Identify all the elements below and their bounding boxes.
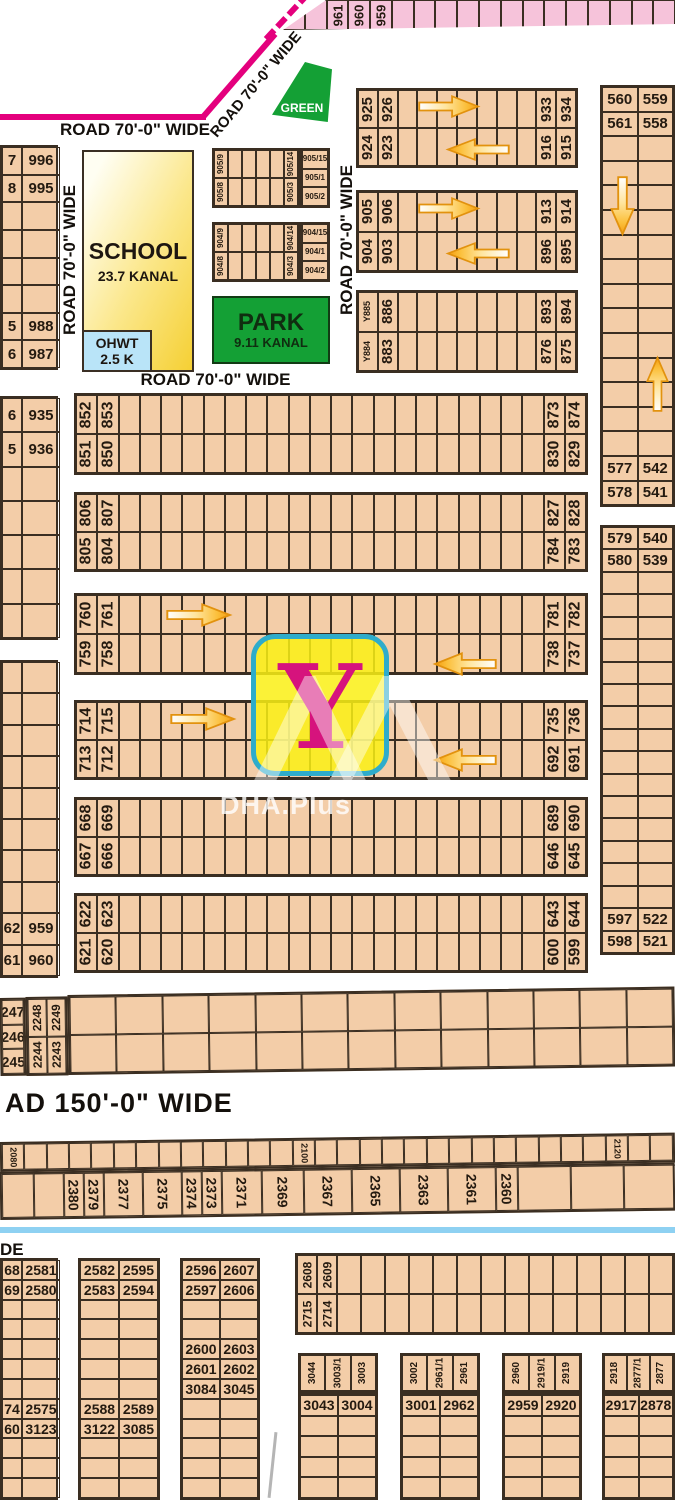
plot-cell	[449, 1137, 472, 1163]
park-area: 9.11 KANAL	[234, 335, 308, 350]
plot-cell	[161, 494, 182, 532]
plot-cell: 737	[565, 634, 586, 673]
block-2918-body: 29172878	[602, 1393, 675, 1500]
plot-cell	[374, 494, 395, 532]
school-area: 23.7 KANAL	[98, 268, 178, 284]
row-805: 806807827828805804784783	[74, 492, 588, 572]
plot-number: 783	[567, 538, 583, 565]
plot-cell	[398, 232, 418, 272]
plot-cell	[604, 1436, 639, 1457]
plot-cell: 851	[76, 434, 97, 473]
plot-cell	[315, 1139, 338, 1165]
plot-number: 2369	[276, 1176, 290, 1207]
plot-cell: 960	[22, 945, 60, 976]
plot-cell: 738	[544, 634, 565, 673]
plot-cell	[220, 1478, 258, 1498]
plot-number: 2920	[545, 1398, 576, 1412]
plot-cell	[300, 1477, 338, 1498]
plot-cell: 646	[544, 837, 565, 875]
ohwt-title: OHWT	[96, 335, 139, 351]
plot-number: 961	[331, 4, 344, 26]
plot-cell	[119, 702, 140, 740]
plot-cell	[561, 1136, 584, 1162]
plot-cell	[331, 434, 352, 473]
plot-cell	[119, 1438, 158, 1458]
plot-cell: 68	[2, 1260, 22, 1280]
plot-number: 578	[607, 485, 632, 500]
plot-number: 761	[100, 601, 116, 628]
plot-cell	[604, 1457, 639, 1478]
plot-cell: 904/3	[284, 252, 298, 280]
plot-cell: 905/3	[284, 178, 298, 206]
plot-cell	[480, 837, 501, 875]
plot-cell	[457, 1255, 481, 1294]
plot-cell	[220, 1458, 258, 1478]
plot-cell	[602, 284, 638, 309]
plot-number: 2360	[500, 1173, 514, 1204]
plot-cell	[80, 1438, 119, 1458]
strip-2360s: 2380237923772375237423732371236923672365…	[0, 1163, 675, 1220]
plot-number: 828	[567, 500, 583, 527]
plot-cell	[140, 799, 161, 837]
plot-cell: 2361	[448, 1167, 497, 1212]
plot-number: 2609	[321, 1261, 333, 1288]
plot-cell	[404, 1138, 427, 1164]
plot-cell	[2, 1300, 22, 1320]
plot-number: 643	[546, 901, 562, 928]
plot-cell	[441, 991, 488, 1030]
plot-cell	[566, 0, 588, 30]
plot-cell: 559	[638, 87, 674, 112]
plot-cell	[638, 774, 674, 796]
plot-number: 2365	[369, 1175, 383, 1206]
plot-cell	[22, 501, 60, 535]
plot-cell	[119, 1339, 158, 1359]
plot-cell	[638, 751, 674, 773]
plot-number: 644	[567, 901, 583, 928]
plot-cell: 934	[556, 90, 576, 128]
plot-cell: 896	[536, 232, 556, 272]
plot-cell	[22, 467, 60, 501]
plot-number: 2595	[123, 1263, 154, 1277]
plot-cell: 903	[378, 232, 398, 272]
plot-cell: 905	[358, 192, 378, 232]
plot-cell	[310, 434, 331, 473]
plot-cell	[161, 933, 182, 971]
plot-cell	[2, 467, 22, 501]
plot-cell	[374, 837, 395, 875]
plot-cell	[459, 395, 480, 434]
plot-number: 74	[4, 1402, 20, 1416]
plot-cell	[481, 1255, 505, 1294]
plot-cell	[501, 702, 522, 740]
plot-cell	[2, 693, 22, 724]
plot-cell	[542, 1457, 580, 1478]
plot-cell	[602, 774, 638, 796]
plot-cell	[270, 1140, 293, 1166]
plot-cell: 2588	[80, 1399, 119, 1419]
plot-cell	[302, 1031, 349, 1070]
plot-number: 904/9	[217, 228, 225, 248]
plot-cell: 521	[638, 931, 674, 953]
plot-cell	[182, 532, 203, 570]
plot-cell	[22, 1339, 60, 1359]
plot-number: 2582	[84, 1263, 115, 1277]
plot-cell	[518, 1166, 572, 1211]
plot-cell	[487, 990, 534, 1029]
plot-cell: 926	[378, 90, 398, 128]
plot-cell: 3004	[338, 1395, 376, 1416]
plot-cell: 623	[97, 895, 118, 933]
plot-cell	[140, 595, 161, 634]
plot-cell	[80, 1339, 119, 1359]
plot-cell	[209, 1032, 256, 1071]
plot-cell	[602, 841, 638, 863]
plot-cell	[352, 395, 373, 434]
plot-cell	[480, 799, 501, 837]
plot-cell: 759	[76, 634, 97, 673]
plot-cell	[523, 0, 545, 30]
plot-number: 246	[2, 1030, 24, 1044]
plot-cell	[2, 756, 22, 787]
plot-cell	[228, 252, 242, 280]
plot-cell	[542, 1477, 580, 1498]
plot-number: 2878	[640, 1398, 671, 1412]
plot-cell	[459, 799, 480, 837]
plot-cell	[22, 1458, 60, 1478]
plot-cell	[140, 494, 161, 532]
plot-number: 2243	[51, 1041, 63, 1068]
plot-number: 894	[559, 299, 574, 324]
plot-cell	[639, 1477, 674, 1498]
plot-cell	[22, 788, 60, 819]
plot-cell: 667	[76, 837, 97, 875]
plot-number: 2363	[417, 1174, 431, 1205]
plot-cell: 7	[2, 147, 22, 175]
plot-cell: 828	[565, 494, 586, 532]
plot-number: 914	[559, 199, 574, 224]
plot-cell	[22, 569, 60, 603]
plot-cell: 2608	[297, 1255, 317, 1294]
plot-cell	[256, 224, 270, 252]
plot-cell	[246, 595, 267, 634]
plot-cell	[352, 494, 373, 532]
plot-cell: 3045	[220, 1379, 258, 1399]
plot-number: 904/1	[305, 248, 325, 256]
plot-cell	[480, 702, 501, 740]
plot-number: 2580	[25, 1283, 56, 1297]
plot-cell: 936	[22, 432, 60, 466]
plot-cell	[494, 1137, 517, 1163]
plot-cell: 577	[602, 456, 638, 481]
plot-cell	[267, 532, 288, 570]
plot-cell	[209, 994, 256, 1033]
row-851: 852853873874851850830829	[74, 393, 588, 475]
plot-cell: 2583	[80, 1280, 119, 1300]
plot-cell	[140, 740, 161, 778]
plot-number: 905	[360, 199, 375, 224]
plot-number: 935	[28, 408, 53, 423]
plot-number: 2100	[299, 1143, 308, 1163]
plot-number: 883	[380, 339, 395, 364]
plot-cell	[331, 895, 352, 933]
plot-cell	[270, 178, 284, 206]
cluster-904-grid: 904/9904/14904/8904/3	[212, 222, 300, 282]
plot-cell	[638, 572, 674, 594]
plot-number: 3084	[185, 1382, 216, 1396]
plot-number: 579	[607, 531, 632, 546]
plot-cell	[267, 434, 288, 473]
plot-cell	[352, 837, 373, 875]
plot-cell: 904/1	[302, 243, 328, 262]
plot-number: 830	[546, 440, 562, 467]
plot-cell	[638, 594, 674, 616]
divider-line	[268, 1432, 278, 1498]
plot-cell	[225, 395, 246, 434]
plot-cell: 806	[76, 494, 97, 532]
plot-cell: 2962	[440, 1395, 478, 1416]
plot-cell	[417, 232, 437, 272]
plot-cell	[182, 1300, 220, 1320]
plot-cell	[392, 0, 414, 30]
plot-cell	[394, 992, 441, 1031]
plot-cell	[2, 1339, 22, 1359]
plot-cell	[522, 895, 543, 933]
plot-cell	[459, 494, 480, 532]
plot-cell	[602, 358, 638, 383]
plot-cell	[225, 933, 246, 971]
plot-number: 807	[100, 500, 116, 527]
plot-cell	[638, 259, 674, 284]
plot-number: 539	[643, 553, 668, 568]
left-block-2: 69355936	[0, 396, 58, 640]
plot-cell: 916	[536, 128, 556, 166]
plot-number: 960	[28, 953, 53, 968]
plot-cell: 873	[544, 395, 565, 434]
plot-number: 904	[360, 239, 375, 264]
plot-number: 3123	[25, 1422, 56, 1436]
plot-cell	[588, 0, 610, 30]
plot-cell	[220, 1399, 258, 1419]
block-2960-head: 29602919/12919	[502, 1353, 582, 1393]
plot-cell	[161, 434, 182, 473]
plot-number: 2917	[606, 1398, 637, 1412]
plot-cell: 560	[602, 87, 638, 112]
plot-cell: 804	[97, 532, 118, 570]
plot-number: 3003/1	[333, 1358, 343, 1389]
plot-cell	[437, 332, 457, 372]
plot-cell	[374, 895, 395, 933]
plot-number: 2962	[443, 1398, 474, 1412]
plot-number: 69	[4, 1283, 20, 1297]
plot-cell	[119, 1458, 158, 1478]
plot-cell: 2367	[304, 1169, 353, 1214]
plot-cell	[459, 702, 480, 740]
plot-number: 667	[79, 843, 95, 870]
plot-number: 668	[79, 805, 95, 832]
plot-cell	[433, 1294, 457, 1333]
plot-number: 2377	[116, 1179, 130, 1210]
plot-cell	[416, 395, 437, 434]
plot-cell	[457, 0, 479, 30]
plot-cell	[402, 1477, 440, 1498]
plot-cell	[2, 1359, 22, 1379]
plot-number: 599	[567, 939, 583, 966]
plot-cell	[638, 308, 674, 333]
plot-cell	[440, 1477, 478, 1498]
plot-cell	[2, 819, 22, 850]
plot-cell	[337, 1255, 361, 1294]
plot-number: 874	[567, 401, 583, 428]
plot-cell	[602, 594, 638, 616]
plot-cell	[204, 494, 225, 532]
plot-number: 851	[79, 440, 95, 467]
plot-cell	[433, 1255, 457, 1294]
plot-cell: 933	[536, 90, 556, 128]
plot-cell	[604, 1477, 639, 1498]
plot-cell	[289, 837, 310, 875]
plot-cell	[501, 434, 522, 473]
plot-cell: 935	[22, 398, 60, 432]
plot-cell	[289, 434, 310, 473]
plot-cell	[638, 706, 674, 728]
plot-cell	[627, 1027, 674, 1066]
plot-cell	[416, 494, 437, 532]
plot-cell	[140, 702, 161, 740]
plot-cell	[22, 1359, 60, 1379]
plot-cell: 6	[2, 398, 22, 432]
plot-cell	[517, 232, 537, 272]
plot-number: 2373	[205, 1177, 219, 1208]
plot-cell	[352, 532, 373, 570]
plot-number: 926	[380, 96, 395, 121]
plot-cell	[416, 837, 437, 875]
plot-cell	[638, 818, 674, 840]
plot-cell: 2365	[352, 1168, 401, 1213]
plot-cell	[553, 1294, 577, 1333]
plot-cell	[310, 837, 331, 875]
plot-number: 561	[607, 116, 632, 131]
plot-number: 2919/1	[537, 1358, 547, 1389]
plot-cell	[638, 136, 674, 161]
plot-cell	[638, 617, 674, 639]
plot-cell	[22, 604, 60, 638]
plot-number: 996	[28, 153, 53, 168]
plot-cell	[398, 332, 418, 372]
plot-cell	[22, 882, 60, 913]
park-block: PARK 9.11 KANAL	[212, 296, 330, 364]
plot-cell	[583, 1136, 606, 1162]
plot-cell: 3002	[402, 1355, 427, 1391]
plot-number: 2919	[562, 1362, 572, 1384]
plot-cell	[220, 1419, 258, 1439]
plot-cell	[225, 634, 246, 673]
plot-cell	[225, 532, 246, 570]
plot-number: 245	[2, 1054, 24, 1068]
road-label-mid-vertical: ROAD 70'-0" WIDE	[337, 129, 357, 351]
plot-cell	[270, 224, 284, 252]
plot-cell: 987	[22, 340, 60, 368]
plot-cell	[161, 740, 182, 778]
plot-cell: 784	[544, 532, 565, 570]
plot-cell	[119, 1478, 158, 1498]
plot-cell	[385, 1294, 409, 1333]
plot-cell	[638, 796, 674, 818]
cluster-905-side: 905/15905/1905/2	[300, 148, 330, 208]
plot-cell: 2249	[46, 998, 66, 1036]
plot-cell	[22, 693, 60, 724]
plot-cell	[161, 895, 182, 933]
plot-cell	[395, 595, 416, 634]
plot-cell	[338, 1416, 376, 1437]
plot-number: 2961/1	[435, 1358, 445, 1389]
plot-cell	[477, 292, 497, 332]
plot-cell	[2, 1319, 22, 1339]
plot-cell	[161, 799, 182, 837]
plot-number: 933	[539, 96, 554, 121]
plot-cell: 905/8	[214, 178, 228, 206]
plot-number: 714	[79, 708, 95, 735]
plot-cell	[653, 0, 675, 30]
plot-cell	[580, 1027, 627, 1066]
plot-cell	[70, 1034, 117, 1073]
plot-cell: 247	[1, 1000, 23, 1025]
plot-cell	[441, 1029, 488, 1068]
plot-number: 60	[4, 1422, 20, 1436]
plot-cell: 692	[544, 740, 565, 778]
plot-number: 580	[607, 553, 632, 568]
plot-number: 3003	[358, 1362, 368, 1384]
plot-cell: 2961/1	[427, 1355, 452, 1391]
plot-cell: 2120	[605, 1135, 628, 1161]
plot-number: 692	[546, 746, 562, 773]
plot-cell: 783	[565, 532, 586, 570]
plot-cell	[331, 837, 352, 875]
plot-cell	[501, 595, 522, 634]
plot-map-canvas: ROAD 70'-0" WIDE ROAD 70'-0" WIDE ROAD 7…	[0, 0, 675, 1500]
plot-cell	[417, 332, 437, 372]
plot-cell	[459, 434, 480, 473]
plot-number: 2080	[9, 1147, 18, 1167]
plot-number: 737	[567, 640, 583, 667]
plot-cell: 2715	[297, 1294, 317, 1333]
plot-cell	[256, 150, 270, 178]
plot-number: 959	[375, 4, 388, 26]
plot-cell: 2243	[47, 1036, 67, 1074]
plot-cell: 875	[556, 332, 576, 372]
plot-cell	[501, 799, 522, 837]
plot-cell: 3122	[80, 1419, 119, 1439]
plot-number: 3004	[341, 1398, 372, 1412]
plot-cell	[140, 837, 161, 875]
plot-number: 3085	[123, 1422, 154, 1436]
plot-cell: 2919	[555, 1355, 580, 1391]
plot-number: 988	[28, 319, 53, 334]
plot-cell	[2, 850, 22, 881]
plot-cell	[256, 252, 270, 280]
plot-cell: 959	[370, 0, 392, 30]
plot-cell: 2581	[22, 1260, 60, 1280]
plot-number: 2603	[223, 1342, 254, 1356]
plot-cell: 2606	[220, 1280, 258, 1300]
plot-cell: 2244	[28, 1036, 48, 1074]
plot-cell	[204, 634, 225, 673]
plot-cell: 542	[638, 456, 674, 481]
plot-cell	[437, 395, 458, 434]
plot-cell	[182, 837, 203, 875]
block-2596: 2596260725972606260026032601260230843045	[180, 1258, 260, 1500]
plot-cell: 3085	[119, 1419, 158, 1439]
